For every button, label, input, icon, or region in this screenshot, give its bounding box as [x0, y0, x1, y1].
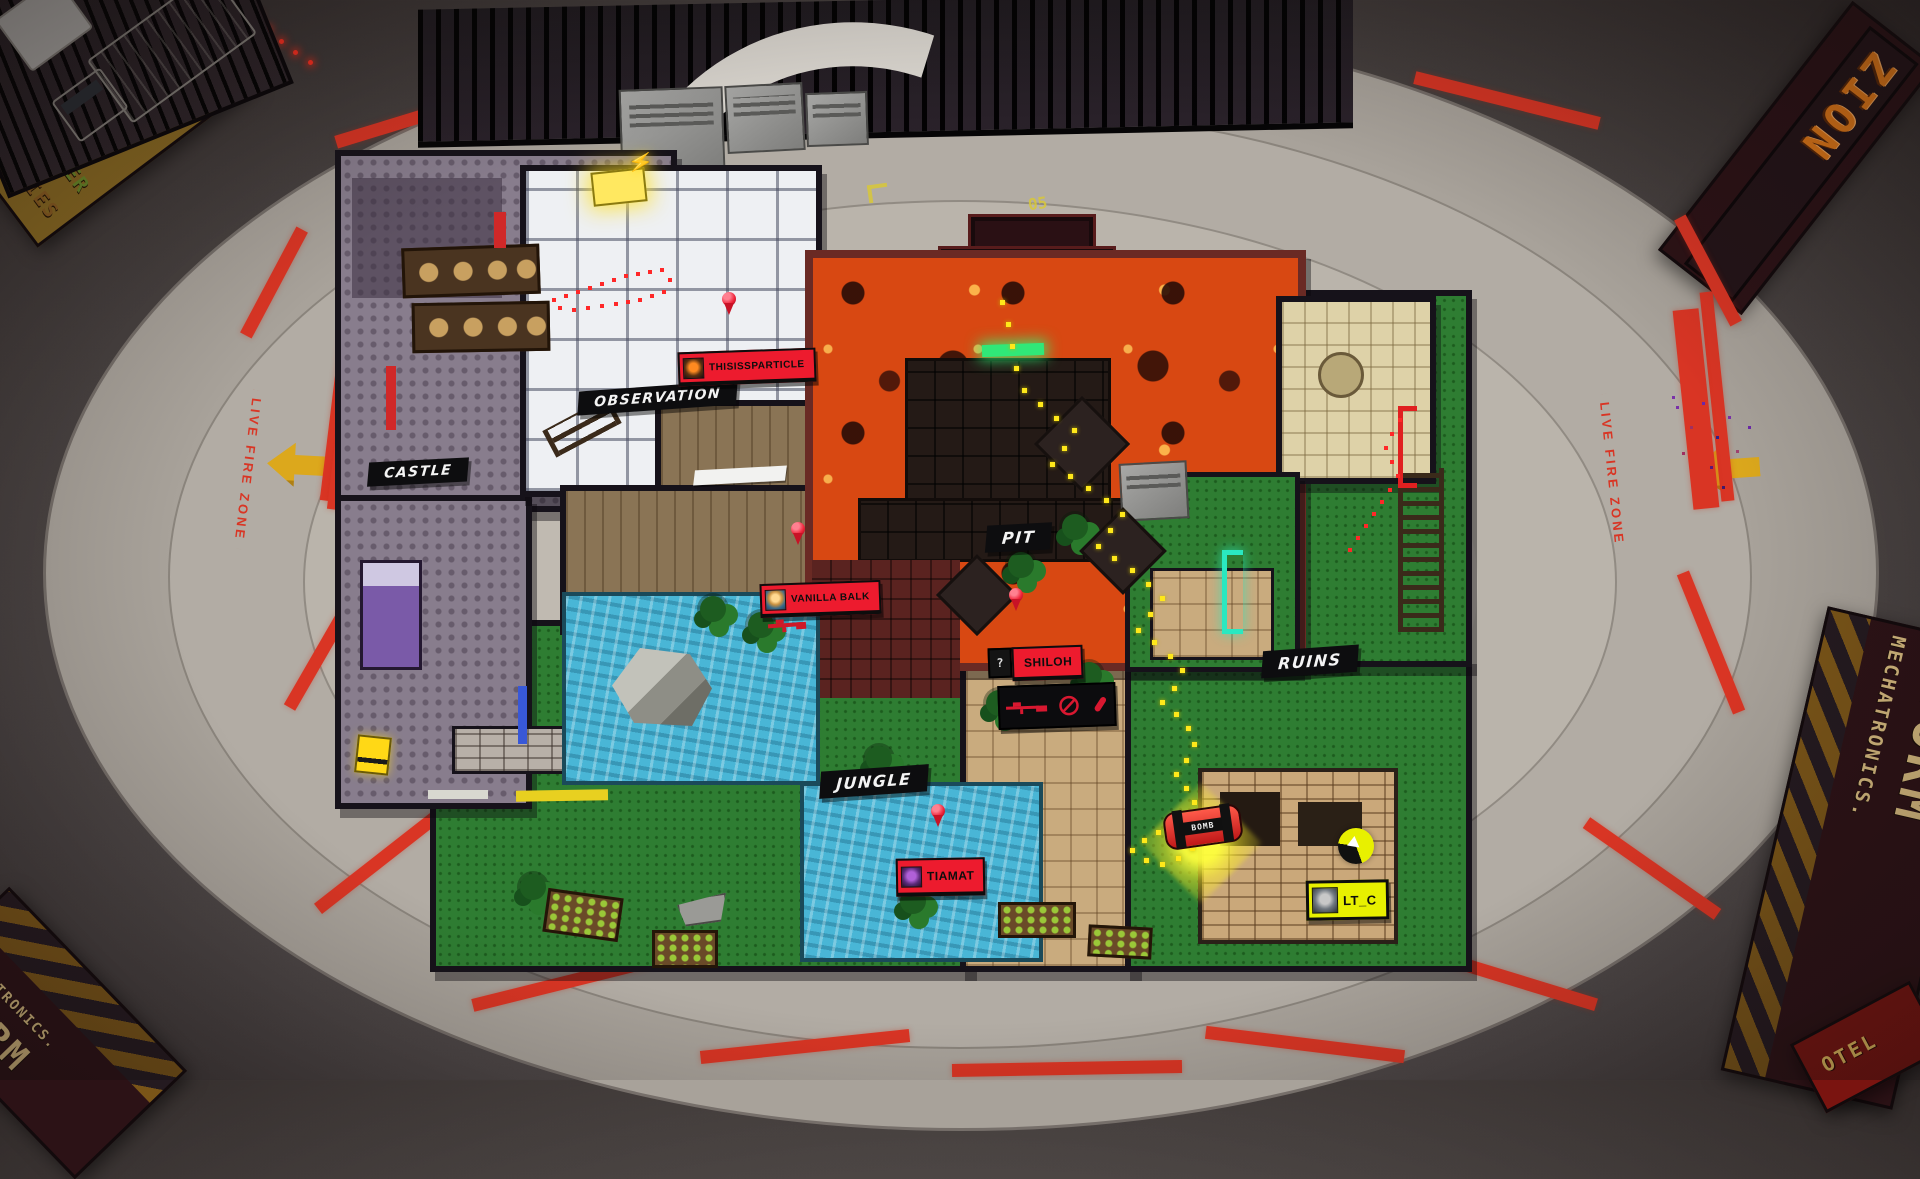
trail-dot-yellow: [1152, 640, 1157, 645]
trail-dot-yellow: [1038, 402, 1043, 407]
trail-dot-yellow: [1160, 700, 1165, 705]
trail-dot-yellow: [1176, 856, 1181, 861]
hud-overlay: CASTLE OBSERVATION PIT JUNGLE RUINS THIS…: [0, 0, 1920, 1080]
zone-banner-castle: CASTLE: [367, 457, 469, 486]
trail-dot-red: [1380, 500, 1384, 504]
trail-dot-red: [660, 268, 664, 272]
trail-dot-yellow: [1054, 416, 1059, 421]
player-portrait: [1312, 887, 1338, 913]
trail-dot-yellow: [1112, 556, 1117, 561]
trail-dot-red: [668, 278, 672, 282]
trail-dot-red: [564, 294, 568, 298]
trail-dot-yellow: [1104, 498, 1109, 503]
player-badge-shiloh[interactable]: SHILOH: [1011, 645, 1083, 681]
zone-banner-jungle: JUNGLE: [819, 764, 928, 799]
zone-label: PIT: [1001, 527, 1036, 548]
trail-dot-red: [648, 270, 652, 274]
trail-dot-red: [662, 290, 666, 294]
trail-dot-yellow: [1184, 786, 1189, 791]
trail-dot-red: [1372, 512, 1376, 516]
trail-dot-yellow: [1014, 366, 1019, 371]
trail-dot-yellow: [1108, 528, 1113, 533]
player-portrait: [683, 357, 705, 379]
trail-dot-red: [1388, 488, 1392, 492]
trail-dot-yellow: [1136, 628, 1141, 633]
zone-label: JUNGLE: [835, 769, 912, 793]
trail-dot-red: [572, 308, 576, 312]
trail-dot-red: [1398, 418, 1402, 422]
trail-dot-yellow: [1022, 388, 1027, 393]
trail-dot-yellow: [1180, 668, 1185, 673]
trail-dot-red: [586, 306, 590, 310]
dropped-gun-icon: [766, 616, 811, 633]
zone-label: OBSERVATION: [594, 386, 722, 411]
trail-dot-yellow: [1160, 596, 1165, 601]
trail-dot-red: [1390, 460, 1394, 464]
ltc-direction-marker[interactable]: [1338, 828, 1374, 864]
trail-dot-yellow: [1160, 862, 1165, 867]
trail-dot-yellow: [1062, 446, 1067, 451]
trail-dot-yellow: [1192, 800, 1197, 805]
trail-dot-red: [614, 302, 618, 306]
trail-dot-yellow: [1096, 544, 1101, 549]
trail-dot-yellow: [1168, 654, 1173, 659]
shiloh-query-icon: ?: [987, 648, 1012, 679]
trail-dot-yellow: [1072, 428, 1077, 433]
map-pin-red: [1008, 588, 1024, 612]
trail-dot-yellow: [1000, 300, 1005, 305]
trail-dot-yellow: [1050, 462, 1055, 467]
player-name: LT_C: [1343, 892, 1377, 908]
trail-dot-red: [624, 274, 628, 278]
trail-dot-yellow: [1174, 712, 1179, 717]
query-glyph: ?: [996, 656, 1004, 670]
trail-dot-yellow: [1120, 512, 1125, 517]
trail-dot-yellow: [1184, 758, 1189, 763]
magazine-icon: [1089, 694, 1110, 715]
shiloh-loadout-bar: [997, 682, 1116, 730]
trail-dot-yellow: [1186, 726, 1191, 731]
player-badge-vanilla-balk[interactable]: VANILLA BALK: [759, 580, 881, 618]
game-screen: { "arena": { "live_fire_zone": "LIVE FIR…: [0, 0, 1920, 1080]
trail-dot-yellow: [1192, 742, 1197, 747]
trail-dot-red: [626, 300, 630, 304]
zone-label: CASTLE: [383, 462, 453, 482]
trail-dot-red: [552, 298, 556, 302]
trail-dot-yellow: [1130, 848, 1135, 853]
zone-banner-observation: OBSERVATION: [577, 380, 738, 415]
trail-dot-red: [612, 278, 616, 282]
player-name: TIAMAT: [927, 868, 975, 883]
player-portrait: [901, 866, 922, 887]
trail-dot-red: [600, 304, 604, 308]
trail-dot-red: [576, 290, 580, 294]
trail-dot-yellow: [1142, 838, 1147, 843]
trail-dot-red: [1364, 524, 1368, 528]
ammo-empty-icon: [1058, 694, 1081, 717]
trail-dot-red: [588, 286, 592, 290]
trail-dot-yellow: [1006, 322, 1011, 327]
trail-dot-yellow: [1172, 686, 1177, 691]
trail-dot-yellow: [1068, 474, 1073, 479]
trail-dot-red: [1356, 536, 1360, 540]
sniper-rifle-icon: [1004, 699, 1048, 715]
trail-dot-red: [636, 272, 640, 276]
trail-dot-red: [558, 306, 562, 310]
trail-dot-yellow: [1156, 830, 1161, 835]
player-badge-thisissparticle[interactable]: THISISSPARTICLE: [677, 348, 816, 387]
player-name: SHILOH: [1024, 654, 1073, 670]
player-name: VANILLA BALK: [791, 591, 870, 605]
trail-dot-yellow: [1086, 486, 1091, 491]
player-portrait: [765, 589, 787, 611]
map-pin-red: [790, 522, 806, 546]
zone-banner-ruins: RUINS: [1261, 645, 1358, 679]
trail-dot-red: [1384, 446, 1388, 450]
player-name: THISISSPARTICLE: [709, 358, 805, 372]
trail-dot-red: [650, 294, 654, 298]
trail-dot-red: [1390, 432, 1394, 436]
trail-dot-red: [1348, 548, 1352, 552]
trail-dot-yellow: [1010, 344, 1015, 349]
zone-label: RUINS: [1277, 650, 1342, 674]
trail-dot-red: [1396, 474, 1400, 478]
trail-dot-yellow: [1146, 582, 1151, 587]
map-pin-red: [930, 804, 946, 828]
zone-banner-pit: PIT: [985, 522, 1052, 553]
trail-dot-yellow: [1148, 612, 1153, 617]
bomb-label: BOMB: [1179, 817, 1226, 836]
trail-dot-yellow: [1130, 568, 1135, 573]
player-badge-lt-c[interactable]: LT_C: [1306, 879, 1389, 920]
trail-dot-red: [600, 282, 604, 286]
trail-dot-yellow: [1174, 772, 1179, 777]
trail-dot-yellow: [1144, 858, 1149, 863]
map-pin-red: [721, 292, 737, 316]
player-badge-tiamat[interactable]: TIAMAT: [896, 857, 986, 897]
trail-dot-red: [638, 298, 642, 302]
